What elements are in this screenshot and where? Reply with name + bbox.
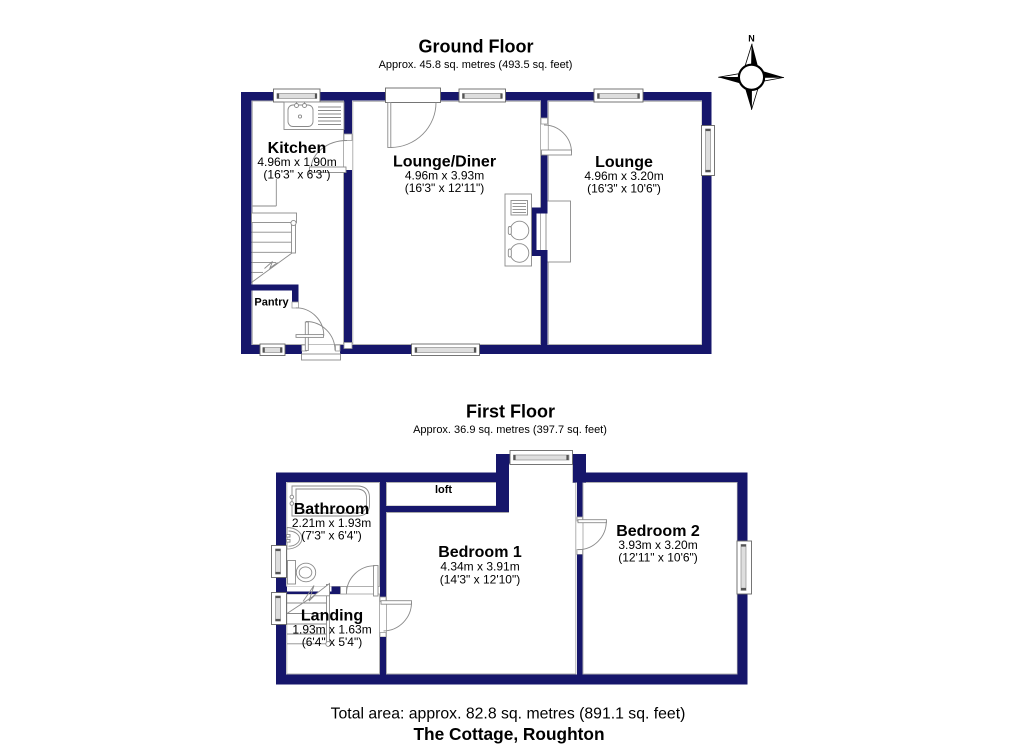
svg-text:First Floor: First Floor bbox=[466, 402, 555, 422]
svg-text:(16'3" x 10'6"): (16'3" x 10'6") bbox=[587, 182, 661, 196]
svg-text:Pantry: Pantry bbox=[254, 297, 289, 309]
svg-text:Approx. 45.8 sq. metres (493.5: Approx. 45.8 sq. metres (493.5 sq. feet) bbox=[379, 59, 573, 71]
svg-text:(16'3" x 6'3"): (16'3" x 6'3") bbox=[263, 168, 330, 182]
svg-text:loft: loft bbox=[435, 484, 452, 496]
svg-text:(7'3" x 6'4"): (7'3" x 6'4") bbox=[301, 529, 361, 543]
svg-text:(16'3" x 12'11"): (16'3" x 12'11") bbox=[405, 181, 485, 195]
svg-text:Approx. 36.9 sq. metres (397.7: Approx. 36.9 sq. metres (397.7 sq. feet) bbox=[413, 424, 607, 436]
svg-text:N: N bbox=[748, 34, 755, 44]
svg-text:Bedroom 1: Bedroom 1 bbox=[438, 544, 522, 561]
svg-text:Total area: approx. 82.8 sq. m: Total area: approx. 82.8 sq. metres (891… bbox=[331, 706, 686, 723]
svg-text:(12'11" x 10'6"): (12'11" x 10'6") bbox=[618, 551, 698, 565]
svg-text:(14'3" x 12'10"): (14'3" x 12'10") bbox=[440, 573, 520, 587]
svg-text:4.34m x 3.91m: 4.34m x 3.91m bbox=[440, 560, 519, 574]
svg-text:(6'4" x 5'4"): (6'4" x 5'4") bbox=[302, 635, 362, 649]
svg-text:Ground Floor: Ground Floor bbox=[419, 37, 534, 57]
svg-text:The Cottage, Roughton: The Cottage, Roughton bbox=[413, 724, 604, 744]
